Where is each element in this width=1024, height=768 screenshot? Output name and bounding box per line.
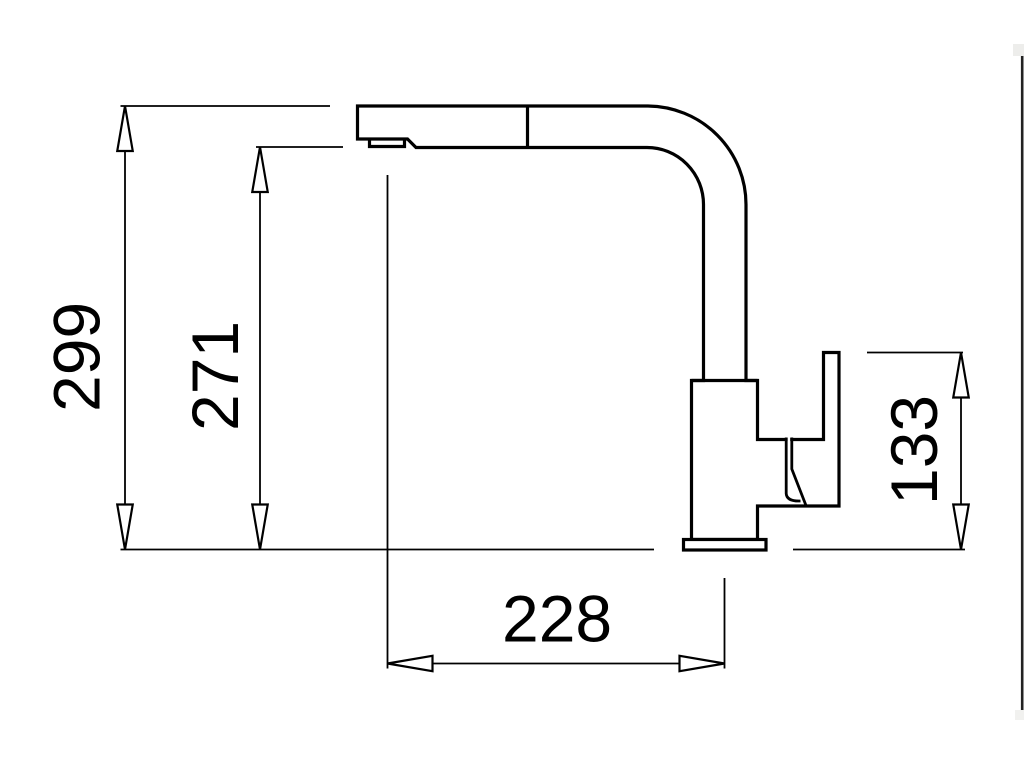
svg-text:228: 228 xyxy=(502,582,612,656)
svg-text:271: 271 xyxy=(178,321,252,431)
svg-text:299: 299 xyxy=(40,302,114,412)
svg-text:133: 133 xyxy=(877,395,951,505)
